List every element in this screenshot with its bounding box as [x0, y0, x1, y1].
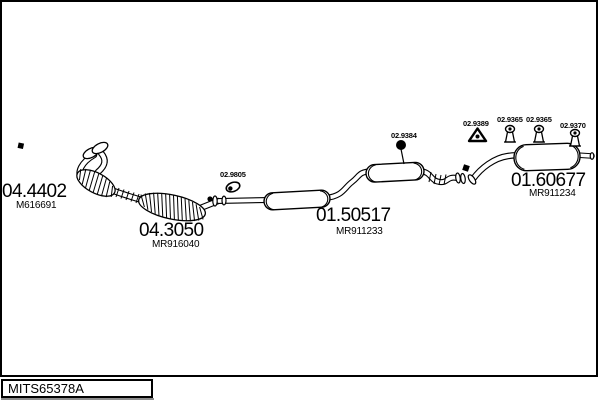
bolt-square-icon [18, 142, 25, 149]
part-number-hanger-round: 02.9384 [391, 132, 417, 140]
part-number-hanger-triangle: 02.9389 [463, 120, 489, 128]
part-number-catalyst: 04.3050 [139, 221, 203, 240]
part-number-hanger-mount-2: 02.9365 [526, 116, 552, 124]
part-number-hanger-mount-3: 02.9370 [560, 122, 586, 130]
part-ref-centre-silencer: MR911233 [336, 227, 383, 237]
part-number-hanger-mount-1: 02.9365 [497, 116, 523, 124]
mount-hanger-icon [533, 126, 545, 143]
part-ref-catalyst: MR916040 [152, 240, 199, 250]
part-number-front-pipe: 04.4402 [2, 182, 66, 201]
part-ref-rear-silencer: MR911234 [529, 189, 576, 199]
part-ref-front-pipe: M616691 [16, 201, 56, 211]
exhaust-parts-diagram: 04.4402 M616691 02.9805 04.3050 MR916040… [0, 0, 600, 400]
part-number-centre-silencer: 01.50517 [316, 206, 390, 225]
mount-hanger-icon [504, 126, 516, 143]
mount-hanger-icon [569, 130, 581, 147]
part-number-clamp: 02.9805 [220, 171, 246, 179]
drawing-code: MITS65378A [8, 381, 84, 396]
ring-hanger-icon [396, 140, 406, 164]
triangle-hanger-icon [469, 129, 486, 142]
exhaust-diagram-drawing [0, 0, 600, 400]
drawing-code-box: MITS65378A [1, 379, 153, 398]
clamp-icon [225, 180, 241, 193]
bolt-square-icon [462, 164, 470, 172]
